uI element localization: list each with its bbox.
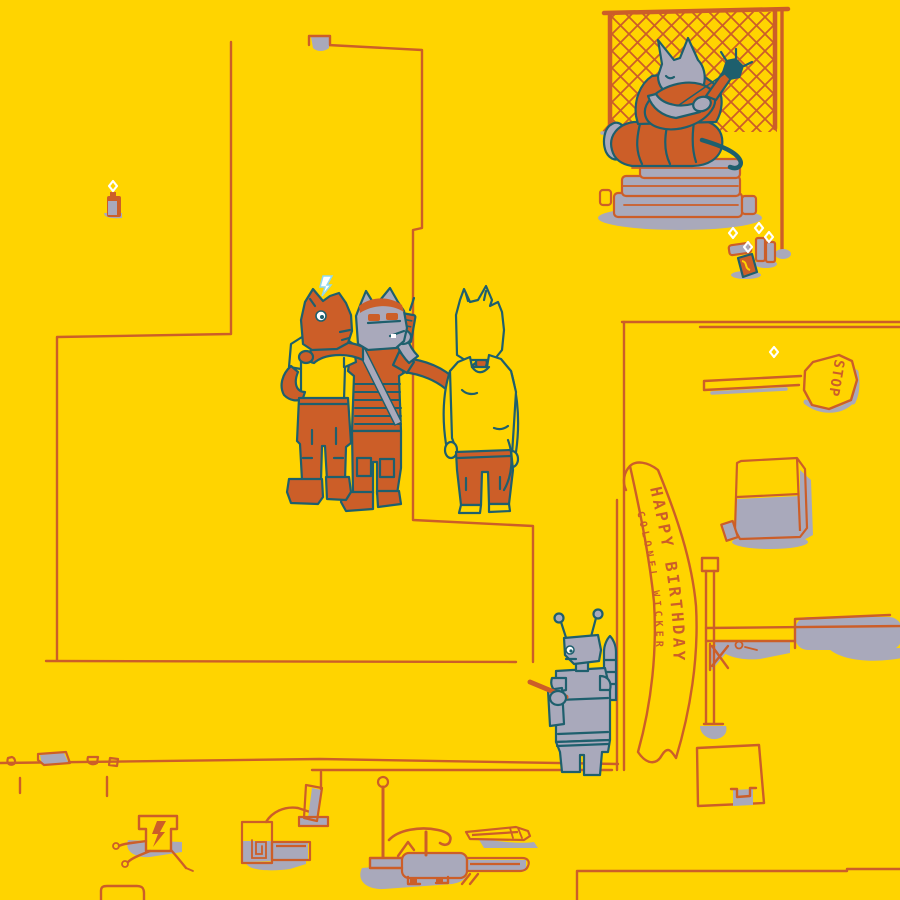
- wolf-hand-on-shoulder: [299, 351, 313, 363]
- hatch-outline: [697, 745, 764, 806]
- pump-tube-fill: [467, 860, 526, 871]
- wolf-tooth: [391, 334, 396, 338]
- pump-body-fill: [403, 853, 467, 878]
- dog-pupil: [320, 315, 324, 319]
- robot-hand: [550, 691, 566, 705]
- game-scene-canvas: STOP: [0, 0, 900, 900]
- antenna-ball: [555, 614, 564, 623]
- pump-foot-pad: [410, 879, 417, 884]
- flask-cap: [110, 192, 116, 197]
- robot-pupil: [569, 649, 572, 652]
- antenna-ball: [594, 610, 603, 619]
- pump-foot-pad: [436, 878, 443, 883]
- wall-floor-line: [46, 661, 516, 662]
- pole-cap: [702, 558, 718, 571]
- fallen-can: [728, 243, 751, 256]
- wolf-eye: [386, 313, 398, 320]
- crate-scrap: [742, 196, 756, 214]
- muffler: [795, 617, 900, 650]
- pump-left-pipe: [370, 858, 403, 868]
- wolf-eye: [368, 314, 380, 321]
- flask-label: [108, 201, 117, 215]
- dog-boots: [287, 477, 351, 504]
- floor-hatch[interactable]: [697, 745, 764, 806]
- can: [766, 242, 775, 262]
- flag-pole-base: [775, 249, 791, 259]
- can: [756, 238, 765, 261]
